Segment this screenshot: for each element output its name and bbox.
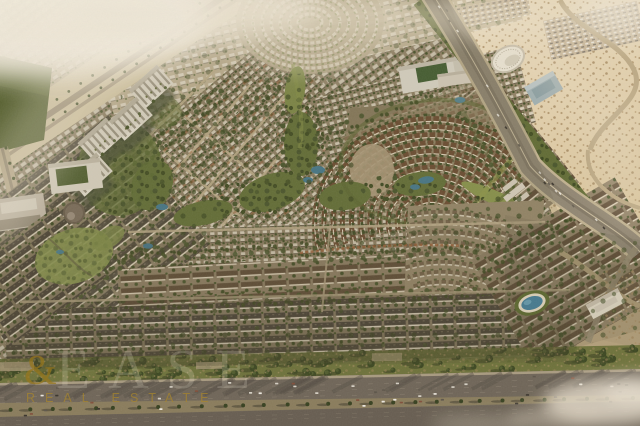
svg-text:&: & — [24, 348, 57, 394]
svg-text:REAL ESTATE: REAL ESTATE — [26, 391, 218, 405]
